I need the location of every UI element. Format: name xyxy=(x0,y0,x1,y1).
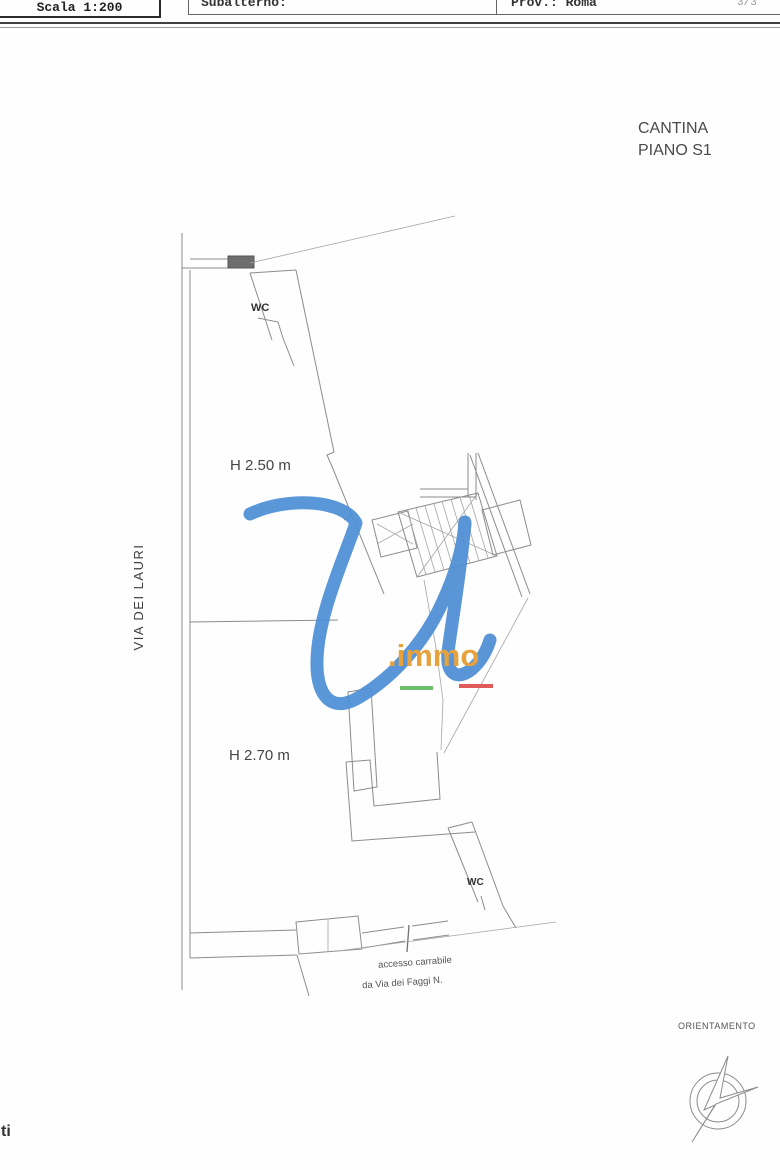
top-wall xyxy=(182,216,455,268)
orientation-label: ORIENTAMENTO xyxy=(678,1021,768,1031)
room-height-upper-label: H 2.50 m xyxy=(230,457,291,474)
room-height-lower-label: H 2.70 m xyxy=(229,747,290,764)
scale-label: Scala 1:200 xyxy=(37,0,123,15)
plan-title-line2: PIANO S1 xyxy=(638,140,773,162)
wc-upper-room xyxy=(250,270,296,366)
plan-title-line1: CANTINA xyxy=(638,118,773,140)
street-name-label: VIA DEI LAURI xyxy=(131,517,149,677)
watermark-underline-red xyxy=(459,684,493,688)
plan-title: CANTINA PIANO S1 xyxy=(638,118,773,162)
compass-icon xyxy=(690,1056,758,1142)
main-diagonal-wall xyxy=(296,270,384,594)
scale-box: Scala 1:200 xyxy=(0,0,161,18)
footer-text-fragment: ti xyxy=(1,1123,11,1141)
header-rule-thin xyxy=(0,27,780,28)
cadastral-floorplan-page: Scala 1:200 Subalterno: Prov.: Roma 3/3 … xyxy=(0,0,780,1170)
header-rule-thick xyxy=(0,22,780,24)
floorplan-drawing xyxy=(0,0,780,1170)
door-hatch-icon xyxy=(228,256,254,268)
watermark-underline-green xyxy=(400,686,433,690)
wc-upper-label: WC xyxy=(251,302,269,314)
subalterno-box: Subalterno: xyxy=(188,0,497,15)
watermark-brand-text: .immo xyxy=(388,638,479,674)
left-boundary-wall xyxy=(182,233,190,990)
wc-lower-label: WC xyxy=(467,877,484,888)
subalterno-label: Subalterno: xyxy=(201,0,496,10)
wc-lower-room xyxy=(448,822,516,928)
page-indicator: 3/3 xyxy=(737,0,757,9)
room-divider-wall xyxy=(190,620,338,622)
